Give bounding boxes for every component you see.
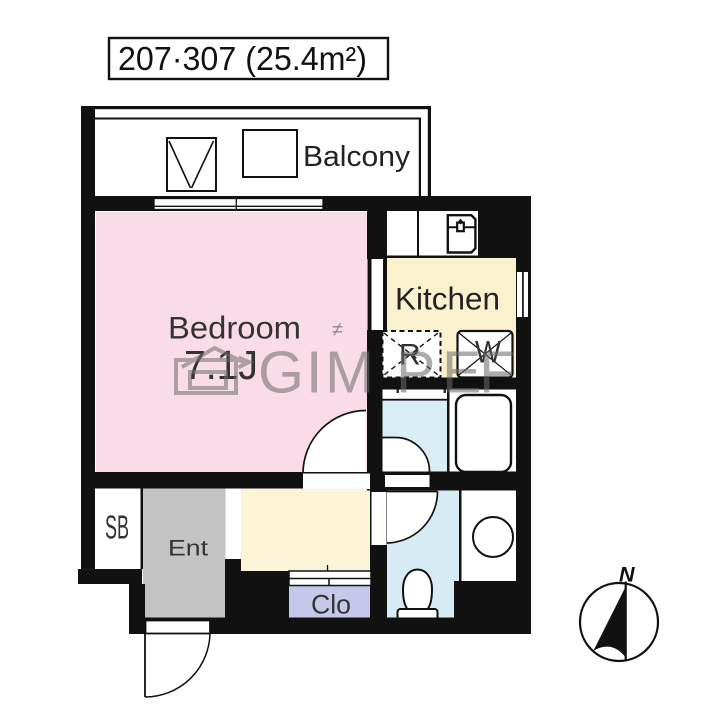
svg-text:N: N [619, 562, 635, 586]
svg-text:≠: ≠ [332, 319, 343, 341]
svg-text:Ent: Ent [168, 536, 209, 561]
svg-text:Balcony: Balcony [303, 141, 411, 173]
svg-text:Clo: Clo [311, 590, 351, 620]
svg-text:SB: SB [105, 509, 129, 546]
svg-text:207·307 (25.4m²): 207·307 (25.4m²) [118, 40, 367, 77]
svg-text:Kitchen: Kitchen [395, 281, 500, 317]
